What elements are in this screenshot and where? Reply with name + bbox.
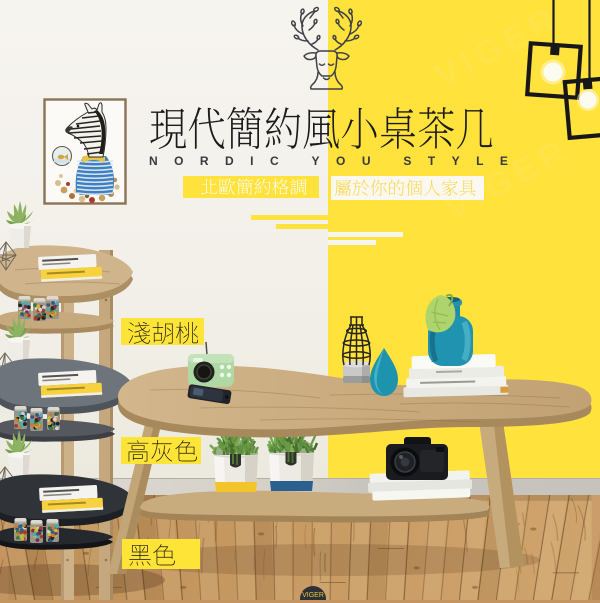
svg-text:VIGER: VIGER [302, 592, 324, 599]
